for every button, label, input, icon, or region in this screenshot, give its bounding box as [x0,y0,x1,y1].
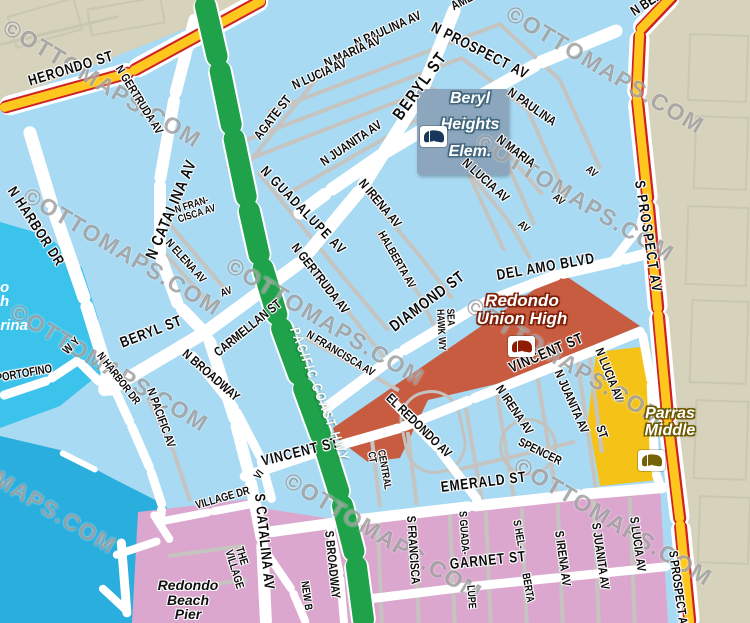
pier-label: Pier [175,606,201,622]
minor-street [558,79,602,169]
school-book-icon [638,450,665,471]
school-label-beryl-heights-elementary: Heights [441,117,500,133]
road-harbor-south [126,420,155,472]
street-label: LUPE [465,585,477,609]
map-canvas: Redondo Beach street map ©OTTOMAPS.COM©O… [0,0,750,623]
book-glyph [642,455,661,466]
building-outline [687,33,749,103]
school-label-beryl-heights-elementary: Elem. [449,144,492,160]
minor-street [172,451,192,501]
street-label: N IRENA AV [356,177,403,230]
book-glyph [517,340,519,352]
street-label: AMETHYST [449,0,505,13]
building-outline [693,399,750,481]
street-label: HALBERTA AV [375,230,416,291]
book-glyph [429,130,431,142]
school-label-redondo-union-high: Redondo [485,292,559,309]
building-outline [689,299,750,385]
pier-label: Redondo [158,577,219,593]
marina-label-fragment: arina [0,317,28,334]
book-glyph [424,131,443,142]
book-glyph [647,454,649,466]
school-label-redondo-union-high: Union High [477,310,568,327]
school-label-parras-middle: Parras [645,406,695,422]
book-glyph [512,341,531,352]
school-book-icon [508,336,535,357]
building-outline [697,495,750,565]
street-label: AV [219,286,233,300]
school-label-beryl-heights-elementary: Beryl [450,91,490,107]
building-outline [685,205,750,287]
marina-label-fragment: h [0,293,9,310]
street-label: CENTRALCT [365,449,392,492]
street-label: N LUCIA AV [290,57,348,92]
school-label-parras-middle: Middle [645,423,696,439]
street-label: SEAHAWK WY [434,308,456,351]
school-book-icon [420,126,447,147]
street-label: S GUADA- [457,511,470,555]
